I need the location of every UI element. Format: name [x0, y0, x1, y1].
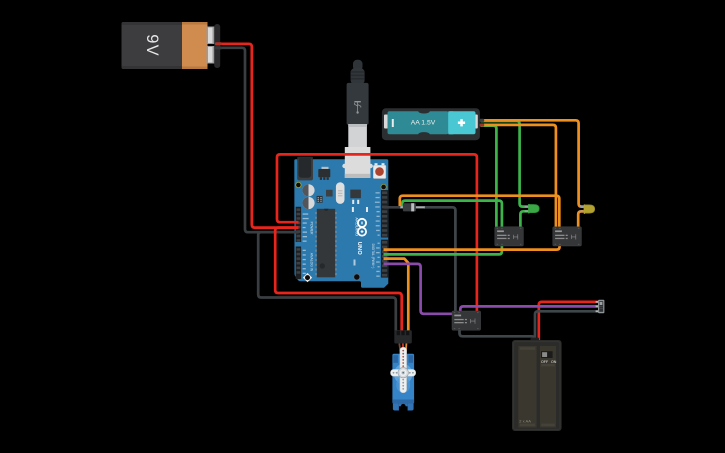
svg-text:POWER: POWER: [310, 222, 314, 235]
svg-text:OFF: OFF: [541, 360, 549, 364]
svg-text:DIGITAL (PWM~): DIGITAL (PWM~): [371, 244, 375, 269]
svg-text:2 x AA: 2 x AA: [519, 418, 531, 423]
svg-text:9V: 9V: [143, 34, 161, 57]
svg-text:UNO: UNO: [356, 242, 362, 256]
svg-text:ON: ON: [551, 360, 557, 364]
svg-text:ANALOG IN: ANALOG IN: [310, 253, 314, 272]
svg-text:ARDUINO: ARDUINO: [354, 217, 358, 236]
svg-text:AA 1.5V: AA 1.5V: [411, 120, 436, 127]
